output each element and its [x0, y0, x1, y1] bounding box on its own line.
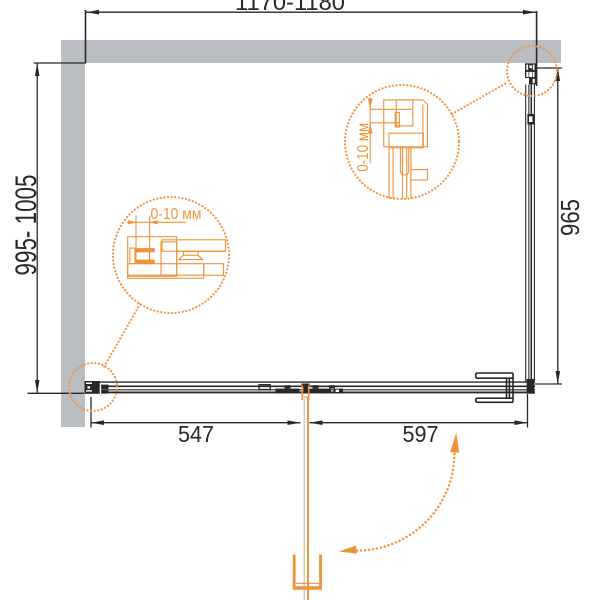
svg-text:965: 965 [555, 199, 585, 236]
svg-text:995- 1005: 995- 1005 [10, 175, 43, 276]
svg-text:597: 597 [403, 421, 439, 447]
svg-text:1170-1180: 1170-1180 [235, 0, 345, 15]
svg-text:0-10 мм: 0-10 мм [355, 123, 372, 172]
svg-text:0-10 мм: 0-10 мм [151, 206, 202, 223]
svg-text:547: 547 [178, 421, 214, 447]
